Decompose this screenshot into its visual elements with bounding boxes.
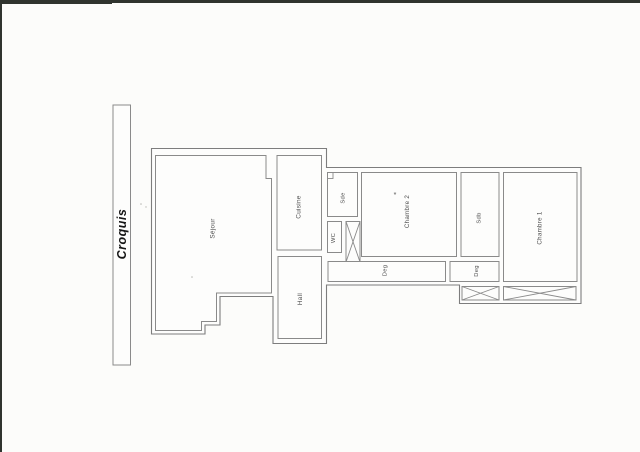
label-chambre2: Chambre 2 xyxy=(404,195,411,229)
label-wc: WC xyxy=(331,233,337,243)
scan-speck xyxy=(191,276,193,278)
label-sdb: Sdb xyxy=(477,212,483,223)
balcony-window-2 xyxy=(504,287,577,301)
chambre2-asterisk-mark: * xyxy=(394,192,397,199)
croquis-title-bar: Croquis xyxy=(113,105,131,365)
floor-plan-svg: Croquis Séjour Cuisine xyxy=(0,0,640,452)
scan-speck xyxy=(140,203,142,205)
balcony-window-1 xyxy=(462,287,499,301)
scanned-page: Croquis Séjour Cuisine xyxy=(0,0,640,452)
label-chambre1: Chambre 1 xyxy=(537,211,544,245)
croquis-title: Croquis xyxy=(115,209,129,260)
label-hall: Hall xyxy=(297,293,304,305)
label-deg2: Deg xyxy=(474,265,480,277)
scan-speck xyxy=(145,206,146,207)
room-sejour-outline xyxy=(156,156,272,331)
label-sejour: Séjour xyxy=(210,218,217,239)
label-cuisine: Cuisine xyxy=(296,195,303,219)
label-deg1: Deg xyxy=(383,265,389,277)
label-sde: Sde xyxy=(341,192,347,203)
